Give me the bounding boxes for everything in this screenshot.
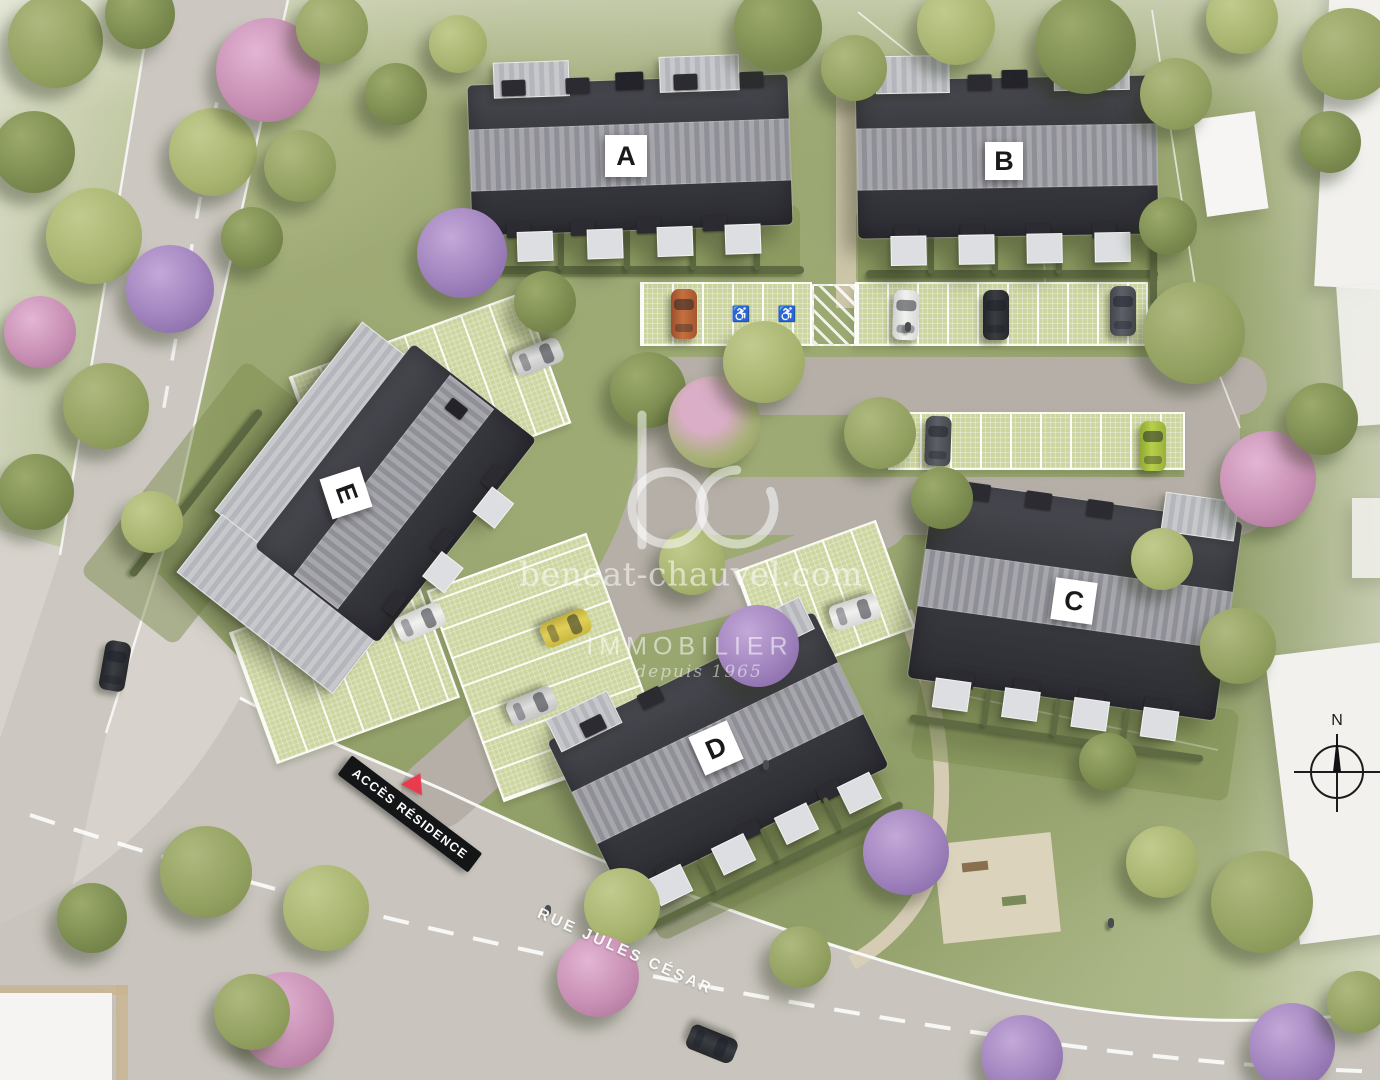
tree	[723, 321, 805, 403]
compass-icon: N	[1292, 712, 1380, 816]
tree	[1211, 851, 1313, 953]
tree	[0, 454, 74, 530]
tree	[4, 296, 76, 368]
disabled-parking-icon: ♿	[732, 305, 751, 323]
tree	[46, 188, 142, 284]
tree	[717, 605, 799, 687]
tree	[514, 271, 576, 333]
person	[763, 760, 769, 770]
car	[892, 290, 920, 341]
tree	[1126, 826, 1198, 898]
tree	[863, 809, 949, 895]
car	[1110, 286, 1136, 336]
tree	[1131, 528, 1193, 590]
car	[924, 416, 952, 467]
tree	[659, 529, 725, 595]
building-label-a: A	[605, 135, 647, 177]
tree	[429, 15, 487, 73]
offsite-building	[0, 993, 112, 1080]
tree	[1143, 282, 1245, 384]
car	[983, 290, 1009, 340]
tree	[821, 35, 887, 101]
tree	[1200, 608, 1276, 684]
tree	[221, 207, 283, 269]
playground-plaza	[933, 832, 1061, 944]
tree	[63, 363, 149, 449]
tree	[1079, 733, 1137, 791]
tree	[1249, 1003, 1335, 1080]
tree	[121, 491, 183, 553]
offsite-building	[1352, 498, 1380, 578]
car	[1140, 421, 1166, 471]
tree	[1327, 971, 1380, 1033]
siteplan-render: ♿ ♿	[0, 0, 1380, 1080]
person	[1108, 918, 1114, 928]
tree	[911, 467, 973, 529]
tree	[1140, 58, 1212, 130]
tree	[1299, 111, 1361, 173]
no-parking-hatch	[812, 284, 856, 346]
roof-terrace	[659, 54, 740, 93]
person	[905, 322, 911, 332]
building-label-b: B	[985, 142, 1023, 180]
tree	[8, 0, 103, 88]
tree	[264, 130, 336, 202]
tree	[160, 826, 252, 918]
tree	[844, 397, 916, 469]
tree	[365, 63, 427, 125]
compass-north-label: N	[1331, 712, 1343, 730]
tree	[214, 974, 290, 1050]
disabled-parking-icon: ♿	[778, 305, 797, 323]
tree	[169, 108, 257, 196]
tree	[57, 883, 127, 953]
hedge	[866, 270, 1158, 278]
tree	[283, 865, 369, 951]
tree	[1286, 383, 1358, 455]
tree	[769, 926, 831, 988]
tree	[126, 245, 214, 333]
tree	[417, 208, 507, 298]
building-label-c: C	[1050, 577, 1097, 624]
car	[671, 289, 697, 339]
tree	[1139, 197, 1197, 255]
